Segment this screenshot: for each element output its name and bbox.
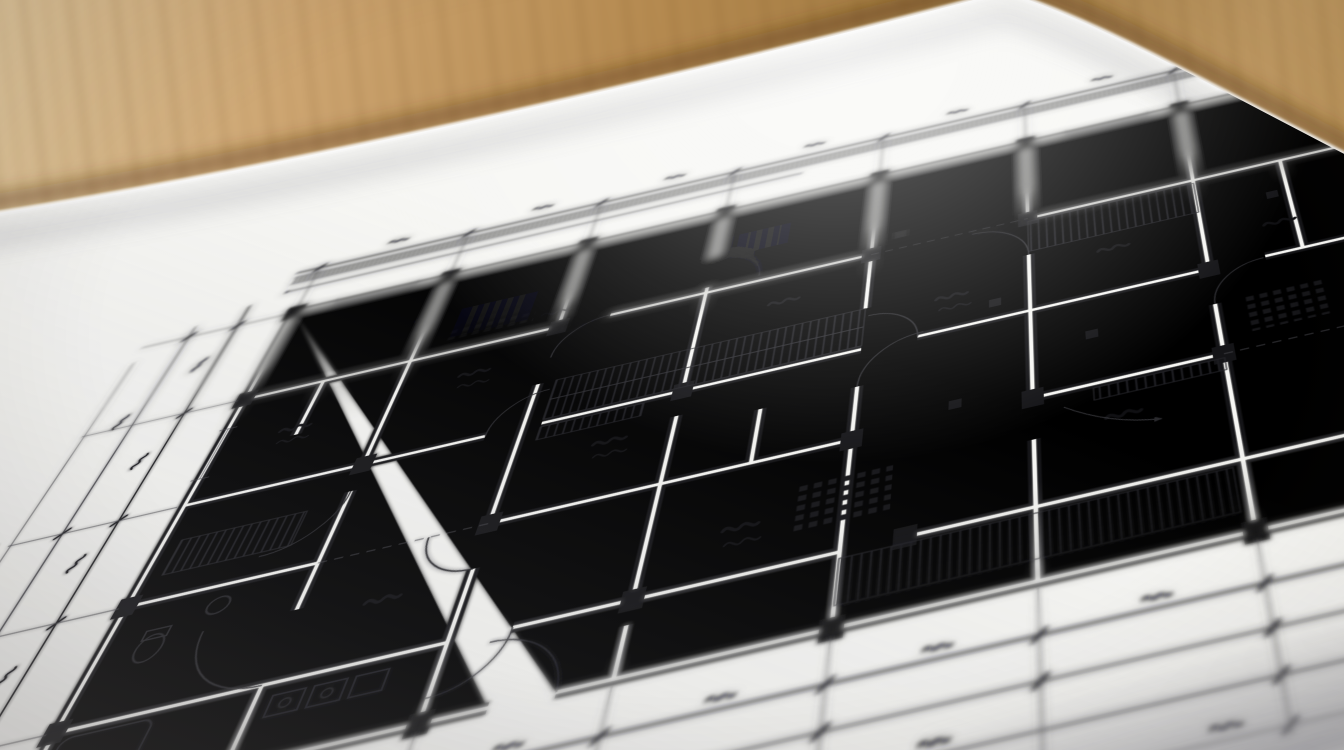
photo-stage: Out-of-focus close-up photo of an archit… <box>0 0 1344 750</box>
